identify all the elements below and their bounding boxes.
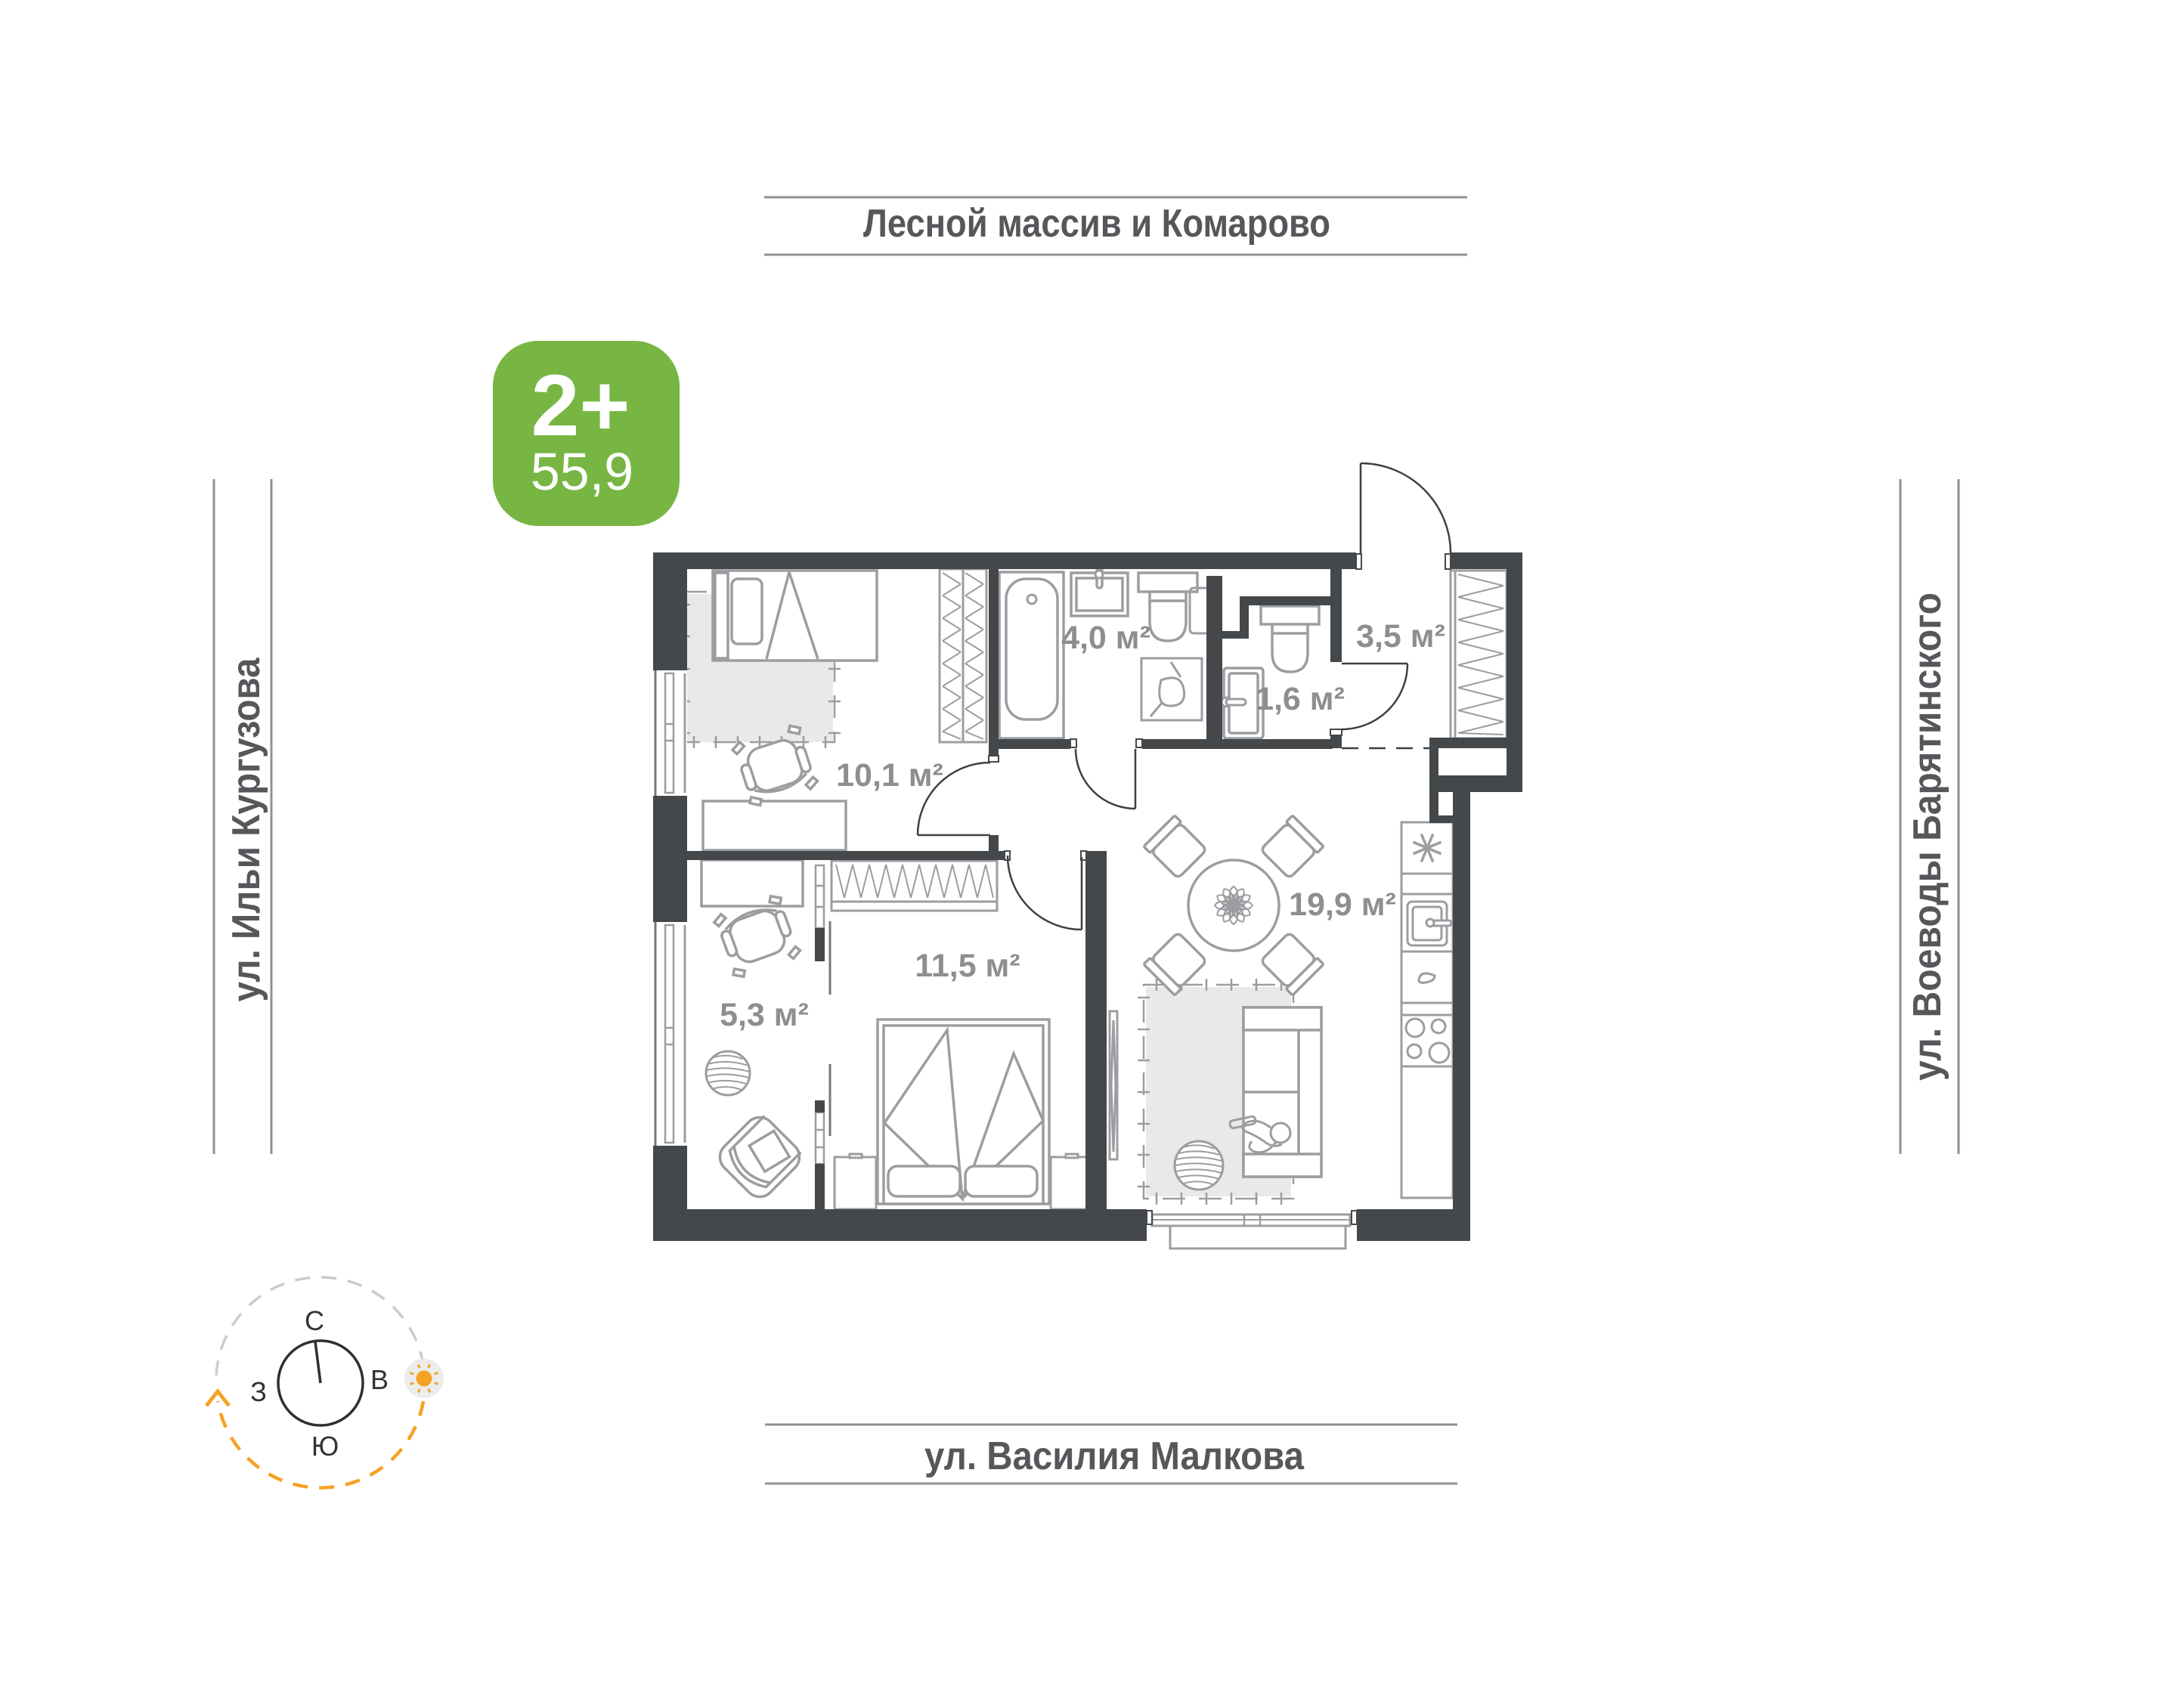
svg-text:В: В [370,1364,389,1395]
svg-text:19,9 м²: 19,9 м² [1289,886,1396,923]
svg-text:Ю: Ю [311,1431,339,1462]
svg-text:С: С [305,1305,324,1336]
svg-text:55,9: 55,9 [531,442,633,501]
svg-text:З: З [250,1376,267,1407]
svg-text:ул. Воеводы Барятинского: ул. Воеводы Барятинского [1906,593,1949,1081]
svg-text:Лесной массив и Комарово: Лесной массив и Комарово [863,202,1330,246]
svg-text:ул. Ильи Кургузова: ул. Ильи Кургузова [225,658,268,1002]
svg-text:2+: 2+ [531,357,630,454]
svg-text:11,5 м²: 11,5 м² [915,948,1020,984]
svg-text:ул. Василия Малкова: ул. Василия Малкова [924,1434,1305,1478]
svg-text:10,1 м²: 10,1 м² [836,757,943,794]
svg-text:5,3 м²: 5,3 м² [720,997,809,1033]
svg-text:3,5 м²: 3,5 м² [1356,618,1445,654]
svg-text:4,0 м²: 4,0 м² [1061,620,1150,656]
svg-text:1,6 м²: 1,6 м² [1256,681,1345,717]
